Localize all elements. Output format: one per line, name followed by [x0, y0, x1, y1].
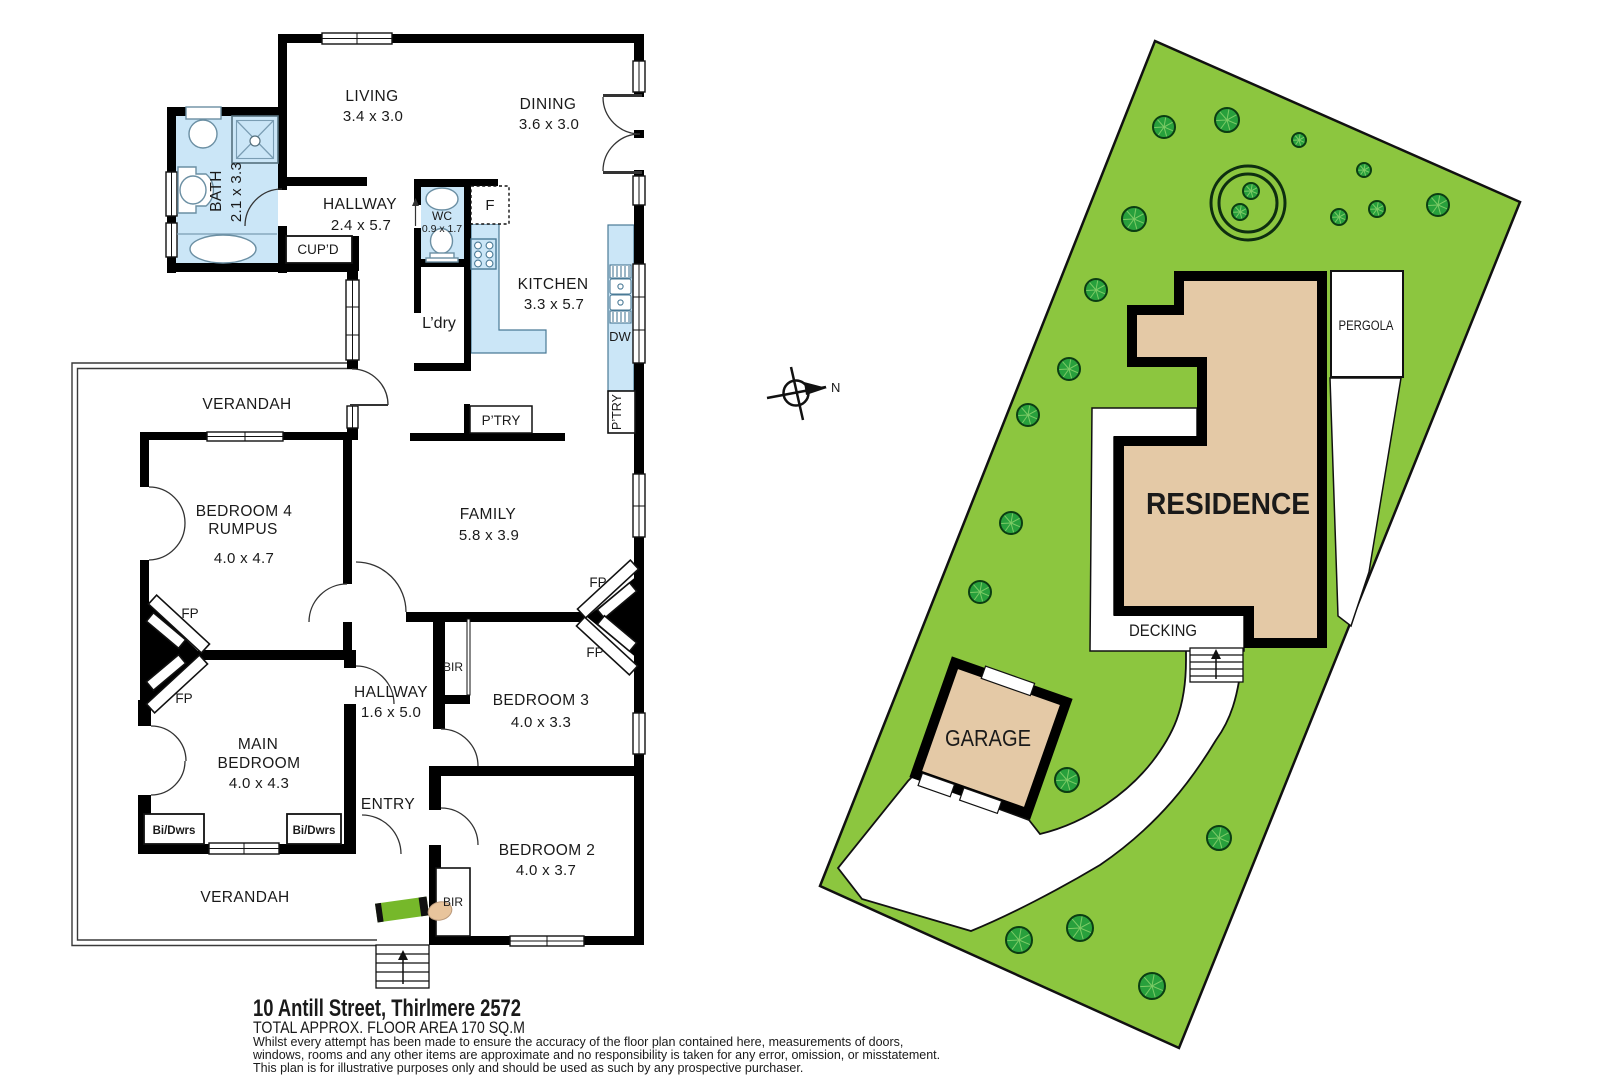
svg-text:Whilst every attempt has been: Whilst every attempt has been made to en… — [253, 1035, 903, 1049]
svg-text:ENTRY: ENTRY — [361, 796, 415, 813]
svg-text:N: N — [831, 380, 840, 395]
svg-text:PERGOLA: PERGOLA — [1339, 318, 1394, 333]
svg-text:3.3 x 5.7: 3.3 x 5.7 — [524, 296, 584, 313]
svg-text:BIR: BIR — [443, 660, 463, 674]
svg-text:4.0 x 3.3: 4.0 x 3.3 — [511, 714, 571, 731]
svg-text:2.1 x 3.3: 2.1 x 3.3 — [228, 162, 245, 222]
svg-text:This plan is for illustrative: This plan is for illustrative purposes o… — [253, 1061, 803, 1075]
svg-text:P’TRY: P’TRY — [482, 413, 521, 428]
svg-text:3.4 x 3.0: 3.4 x 3.0 — [343, 108, 403, 125]
svg-text:HALLWAY: HALLWAY — [354, 684, 428, 701]
svg-text:BATH: BATH — [208, 170, 225, 212]
svg-text:4.0 x 4.3: 4.0 x 4.3 — [229, 775, 289, 792]
svg-text:4.0 x 3.7: 4.0 x 3.7 — [516, 862, 576, 879]
svg-text:3.6 x 3.0: 3.6 x 3.0 — [519, 116, 579, 133]
svg-text:DINING: DINING — [520, 96, 577, 113]
svg-text:P’TRY: P’TRY — [610, 393, 624, 430]
svg-text:F: F — [485, 197, 494, 214]
svg-text:BIR: BIR — [443, 895, 463, 909]
svg-text:windows, rooms and any other i: windows, rooms and any other items are a… — [252, 1048, 940, 1062]
svg-text:BEDROOM 2: BEDROOM 2 — [499, 842, 596, 859]
svg-text:MAIN: MAIN — [238, 736, 278, 753]
svg-text:5.8 x 3.9: 5.8 x 3.9 — [459, 527, 519, 544]
svg-text:Bi/Dwrs: Bi/Dwrs — [153, 825, 196, 837]
svg-text:FP: FP — [586, 645, 603, 660]
svg-text:0.9 x 1.7: 0.9 x 1.7 — [422, 223, 462, 235]
svg-text:Bi/Dwrs: Bi/Dwrs — [293, 825, 336, 837]
svg-text:FP: FP — [589, 575, 606, 590]
svg-text:1.6 x 5.0: 1.6 x 5.0 — [361, 704, 421, 721]
svg-text:HALLWAY: HALLWAY — [323, 196, 397, 213]
svg-text:CUP’D: CUP’D — [297, 242, 339, 257]
svg-text:4.0 x 4.7: 4.0 x 4.7 — [214, 550, 274, 567]
svg-text:KITCHEN: KITCHEN — [518, 276, 589, 293]
svg-text:RESIDENCE: RESIDENCE — [1146, 486, 1310, 521]
svg-text:GARAGE: GARAGE — [945, 725, 1031, 751]
svg-text:BEDROOM 4: BEDROOM 4 — [196, 503, 293, 520]
svg-text:RUMPUS: RUMPUS — [208, 521, 278, 538]
svg-text:DW: DW — [609, 329, 631, 344]
svg-text:DECKING: DECKING — [1129, 621, 1197, 640]
svg-text:LIVING: LIVING — [345, 88, 398, 105]
svg-text:FP: FP — [175, 691, 192, 706]
svg-text:BEDROOM 3: BEDROOM 3 — [493, 692, 590, 709]
svg-text:VERANDAH: VERANDAH — [200, 889, 289, 906]
svg-text:2.4 x 5.7: 2.4 x 5.7 — [331, 217, 391, 234]
svg-text:VERANDAH: VERANDAH — [202, 396, 291, 413]
svg-text:BEDROOM: BEDROOM — [218, 755, 301, 772]
svg-text:WC: WC — [432, 209, 452, 223]
svg-text:FAMILY: FAMILY — [460, 506, 516, 523]
svg-text:FP: FP — [181, 606, 198, 621]
svg-text:L’dry: L’dry — [422, 315, 456, 332]
